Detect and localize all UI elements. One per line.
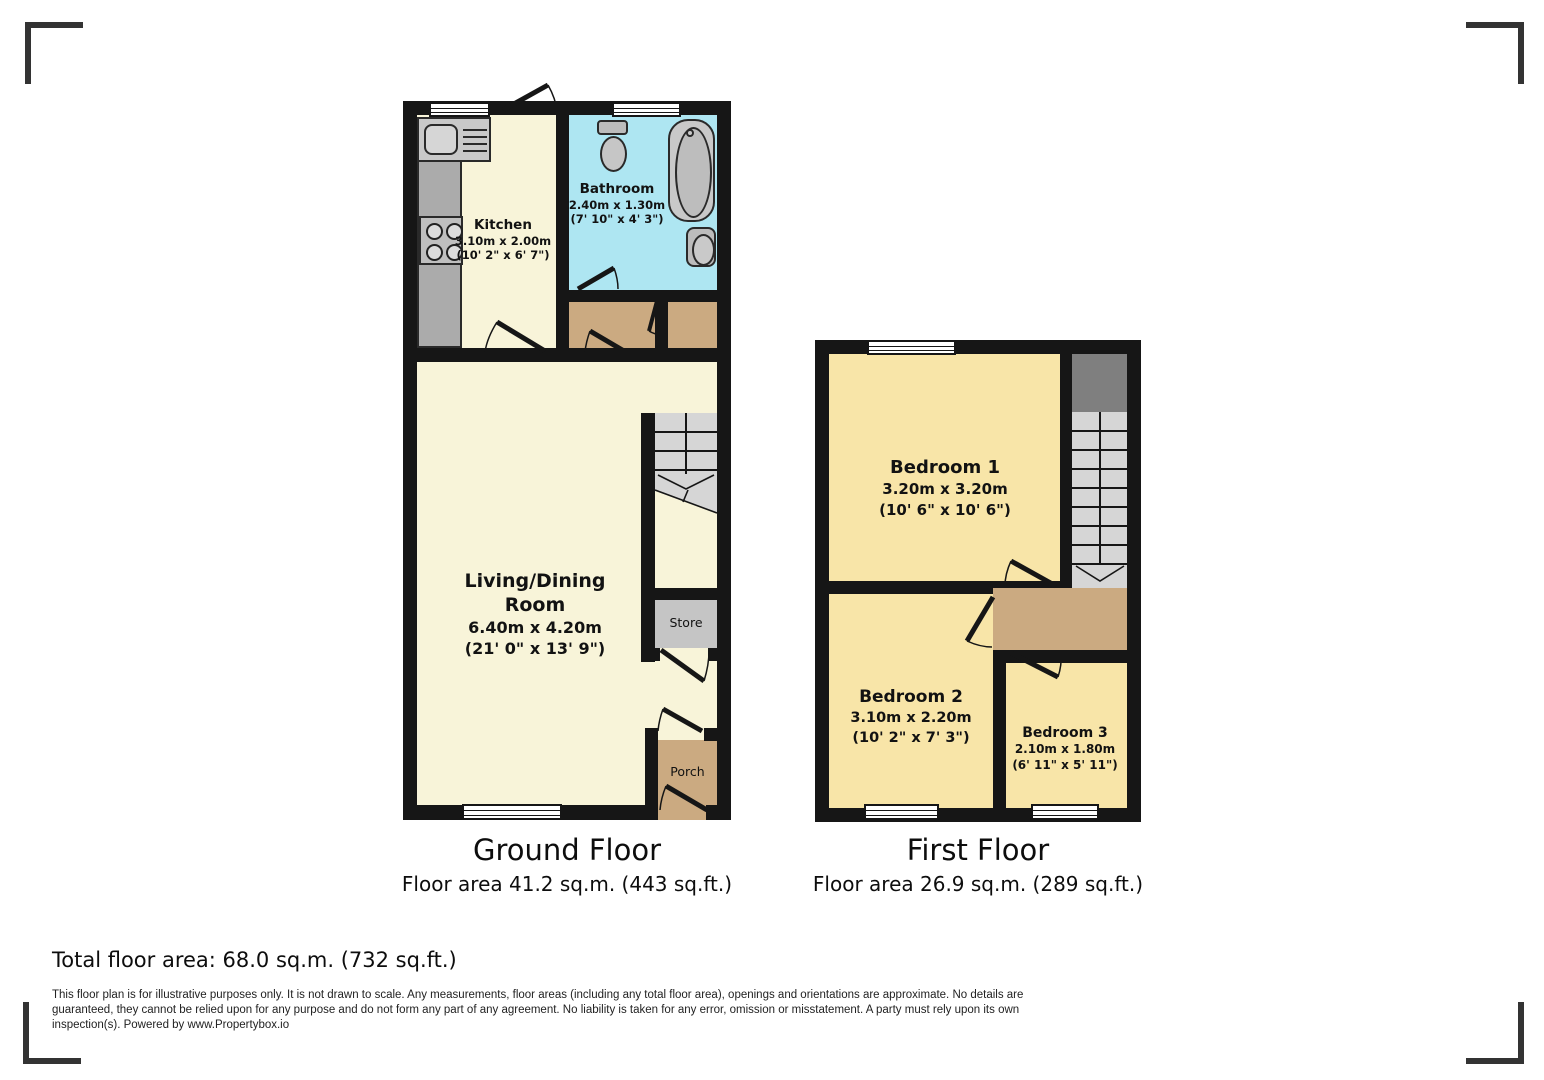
- bathroom-window: [612, 102, 681, 117]
- drainer-line: [463, 129, 487, 131]
- landing-bottom-wall: [1062, 650, 1127, 663]
- room-dim-imperial: (6' 11" x 5' 11"): [995, 758, 1135, 774]
- room-name: Bathroom: [547, 181, 687, 198]
- bedroom3-window: [1031, 804, 1099, 820]
- room-name: Living/Dining Room: [435, 569, 635, 617]
- entry-lobby: [668, 302, 717, 348]
- porch-side-wall: [645, 728, 658, 820]
- room-dim-metric: 6.40m x 4.20m: [435, 617, 635, 638]
- porch-label: Porch: [658, 764, 717, 779]
- bedroom1-bedroom2-wall: [829, 581, 993, 594]
- store-bottom-wall-stub: [708, 648, 717, 661]
- room-dim-imperial: (10' 2" x 7' 3"): [811, 728, 1011, 748]
- first-floor-area: Floor area 26.9 sq.m. (289 sq.ft.): [778, 872, 1178, 896]
- room-name: Bedroom 3: [995, 724, 1135, 742]
- store-top-wall: [641, 588, 717, 600]
- room-dim-metric: 3.10m x 2.20m: [811, 708, 1011, 728]
- bathroom-label: Bathroom 2.40m x 1.30m (7' 10" x 4' 3"): [547, 181, 687, 226]
- corner-mark-top-left: [25, 22, 83, 84]
- living-room-window: [462, 804, 562, 820]
- room-name: Bedroom 1: [845, 456, 1045, 479]
- corner-mark-top-right: [1466, 22, 1524, 84]
- ground-floor-area: Floor area 41.2 sq.m. (443 sq.ft.): [367, 872, 767, 896]
- bedroom1-window: [867, 340, 956, 355]
- corner-mark-bottom-right: [1466, 1002, 1524, 1064]
- store-bottom-wall: [641, 648, 660, 661]
- stairs-side-wall: [641, 413, 655, 662]
- landing: [993, 588, 1127, 650]
- sink-basin: [424, 124, 458, 155]
- room-dim-metric: 3.10m x 2.00m: [433, 234, 573, 248]
- staircase-first: [1072, 412, 1127, 588]
- hallway: [569, 302, 655, 348]
- porch-bottom-wall-stub: [706, 805, 717, 820]
- drainer-line: [463, 143, 487, 145]
- first-floor-title: First Floor: [815, 833, 1141, 867]
- floorplan-page: { "floors": { "ground": { "title": "Grou…: [0, 0, 1544, 1080]
- room-dim-imperial: (7' 10" x 4' 3"): [547, 212, 687, 226]
- disclaimer-text: This floor plan is for illustrative purp…: [52, 988, 1087, 1033]
- washbasin-icon: [686, 227, 716, 267]
- toilet-icon: [597, 120, 628, 135]
- store-label: Store: [655, 615, 717, 630]
- ground-floor-title: Ground Floor: [403, 833, 731, 867]
- bedroom2-label: Bedroom 2 3.10m x 2.20m (10' 2" x 7' 3"): [811, 686, 1011, 748]
- drainer-line: [463, 150, 487, 152]
- room-dim-imperial: (10' 2" x 6' 7"): [433, 248, 573, 262]
- total-floor-area: Total floor area: 68.0 sq.m. (732 sq.ft.…: [52, 948, 457, 972]
- toilet-bowl: [600, 136, 627, 172]
- room-name: Bedroom 2: [811, 686, 1011, 708]
- living-dining-label: Living/Dining Room 6.40m x 4.20m (21' 0"…: [435, 569, 635, 659]
- porch-top-wall-stub: [704, 728, 717, 741]
- bedroom2-window: [864, 804, 939, 820]
- room-dim-imperial: (10' 6" x 10' 6"): [845, 500, 1045, 521]
- bedroom1-label: Bedroom 1 3.20m x 3.20m (10' 6" x 10' 6"…: [845, 456, 1045, 520]
- drainer-line: [463, 136, 487, 138]
- stair-landing-top: [1072, 354, 1127, 412]
- room-dim-metric: 3.20m x 3.20m: [845, 479, 1045, 500]
- room-dim-metric: 2.10m x 1.80m: [995, 742, 1135, 758]
- room-dim-metric: 2.40m x 1.30m: [547, 198, 687, 212]
- bedroom3-label: Bedroom 3 2.10m x 1.80m (6' 11" x 5' 11"…: [995, 724, 1135, 773]
- kitchen-window: [429, 102, 490, 117]
- plan-linework-overlay: [0, 0, 1544, 1080]
- room-dim-imperial: (21' 0" x 13' 9"): [435, 638, 635, 659]
